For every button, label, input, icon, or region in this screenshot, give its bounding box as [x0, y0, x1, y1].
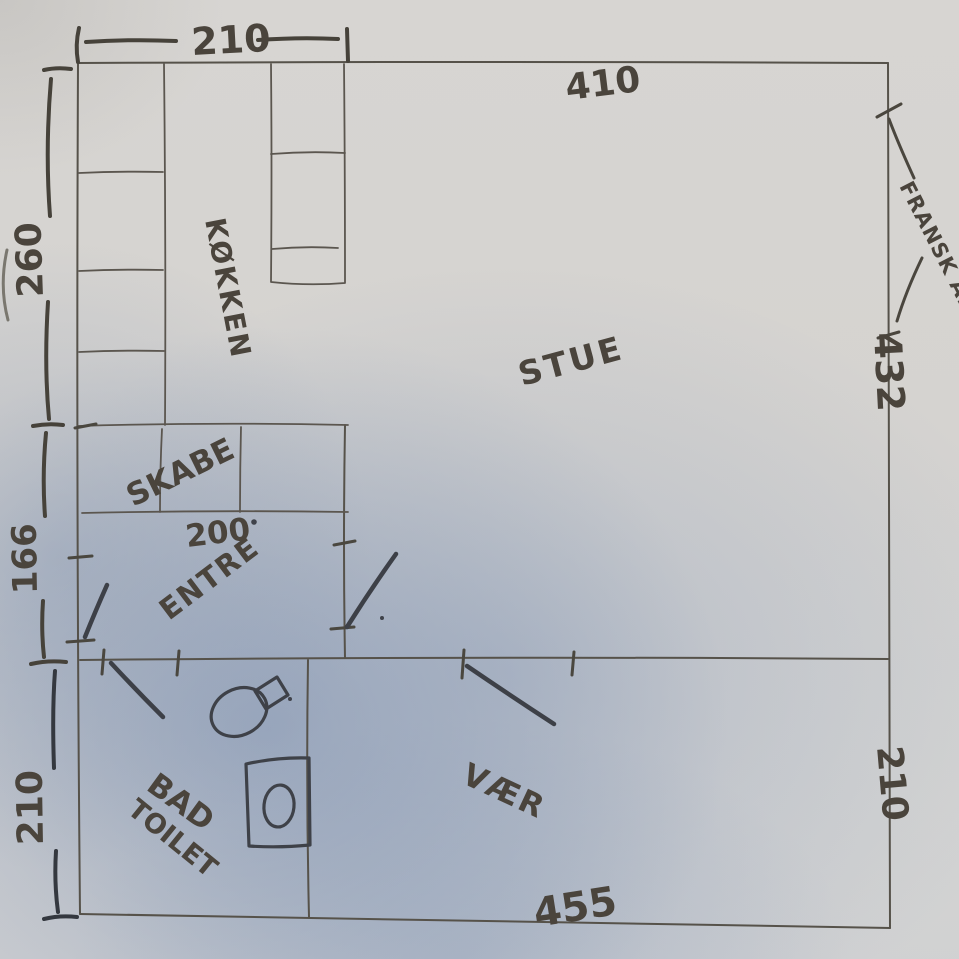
- dim-left-tick-mid1: [33, 424, 63, 426]
- wall-bottom: [80, 914, 890, 928]
- dim-left-line-166a: [44, 433, 46, 516]
- dim-label-kitchen-height: 260: [8, 222, 52, 299]
- dim-label-kitchen-width: 210: [190, 16, 272, 64]
- paper-edge-mark: [3, 250, 8, 320]
- dim-label-entry-height: 166: [5, 523, 46, 595]
- balcony-leader-bottom: [897, 258, 922, 321]
- dim-label-bath-height: 210: [10, 770, 52, 846]
- kitchen-counter-divider-1: [79, 172, 163, 173]
- closet-top-line: [78, 424, 348, 426]
- sink-basin: [262, 784, 296, 829]
- room-label-closets: SKABE: [121, 431, 240, 514]
- kitchen-island-divider-2: [272, 247, 338, 249]
- door-bedroom-swing: [467, 666, 554, 724]
- dim-label-bedroom-height: 210: [868, 744, 915, 822]
- dim-top-tick-left: [77, 28, 79, 62]
- kitchen-island-outline: [271, 64, 345, 284]
- sink-counter: [246, 758, 310, 847]
- balcony-leader-top: [889, 119, 914, 178]
- dim-top-tick-right: [347, 29, 348, 61]
- room-label-kitchen: KØKKEN: [198, 215, 258, 361]
- pen-dot-2: [288, 697, 292, 701]
- wall-left: [77, 63, 80, 914]
- tick-front-door-bottom: [67, 640, 94, 642]
- dim-left-line-166b: [42, 601, 44, 657]
- dim-left-tick-bottom: [44, 916, 77, 919]
- dim-label-living-height: 432: [865, 331, 913, 413]
- dim-top-line-left: [86, 40, 176, 42]
- dim-left-tick-mid2: [31, 661, 66, 664]
- tick-entry-wall-bottom: [331, 627, 354, 629]
- dim-left-line-260b: [46, 302, 49, 419]
- tick-bedroom-door-left: [462, 650, 464, 678]
- tick-bath-door-left: [102, 650, 104, 674]
- dim-left-line-210a: [53, 671, 55, 768]
- toilet-bowl: [203, 678, 276, 746]
- door-bath-swing: [111, 663, 163, 717]
- pen-dot-3: [380, 616, 384, 620]
- tick-bedroom-door-right: [572, 652, 574, 675]
- dim-label-living-width: 410: [563, 59, 643, 109]
- tick-bath-door-right: [177, 651, 179, 675]
- room-label-bedroom: VÆR: [457, 757, 552, 827]
- closet-bottom-line: [82, 511, 348, 513]
- tick-front-door-top: [69, 556, 92, 558]
- room-label-living: STUE: [514, 328, 628, 394]
- kitchen-island-divider-1: [271, 152, 345, 154]
- dim-left-line-210b: [55, 851, 58, 912]
- dim-left-tick-top: [44, 68, 71, 70]
- kitchen-counter-divider-2: [79, 270, 163, 271]
- closet-divider-2: [240, 427, 241, 512]
- dim-label-bedroom-width: 455: [530, 878, 620, 936]
- door-entrance-swing: [85, 585, 107, 637]
- tick-entry-wall-top: [334, 541, 355, 545]
- floorplan-drawing: 210 410 260 166 210 432 210 455 200 STUE…: [0, 0, 959, 959]
- kitchen-counter-edge: [164, 64, 165, 425]
- dim-left-line-260a: [48, 79, 51, 216]
- floorplan-sketch-photo: 210 410 260 166 210 432 210 455 200 STUE…: [0, 0, 959, 959]
- wall-middle-horizontal: [80, 658, 888, 660]
- door-living-swing: [347, 554, 396, 627]
- pen-dot-1: [251, 519, 257, 525]
- kitchen-counter-divider-3: [79, 351, 164, 352]
